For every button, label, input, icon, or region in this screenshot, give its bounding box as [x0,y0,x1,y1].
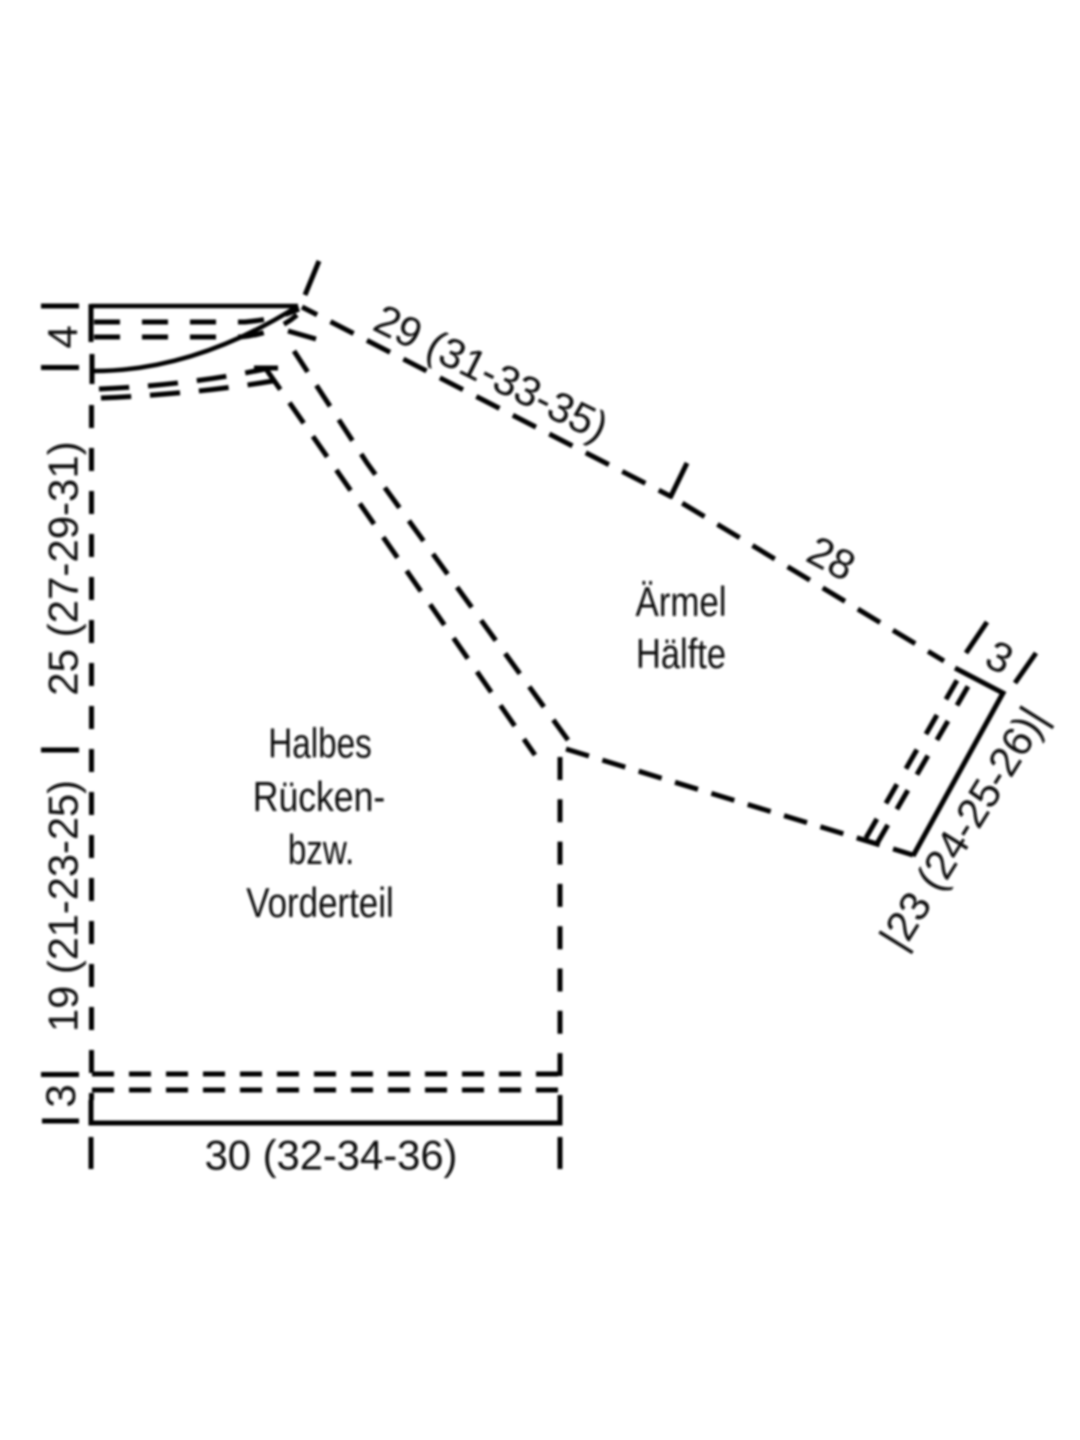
svg-text:bzw.: bzw. [288,827,354,874]
svg-text:Vorderteil: Vorderteil [246,880,393,927]
svg-text:Hälfte: Hälfte [636,631,726,678]
svg-text:4: 4 [39,325,86,348]
svg-text:30 (32-34-36): 30 (32-34-36) [205,1131,458,1178]
svg-text:Rücken-: Rücken- [253,774,385,820]
svg-text:3: 3 [37,1084,84,1107]
svg-text:Halbes: Halbes [268,721,372,768]
svg-text:25 (27-29-31): 25 (27-29-31) [40,441,87,695]
svg-text:Ärmel: Ärmel [636,579,727,626]
svg-text:19 (21-23-25): 19 (21-23-25) [39,780,86,1032]
